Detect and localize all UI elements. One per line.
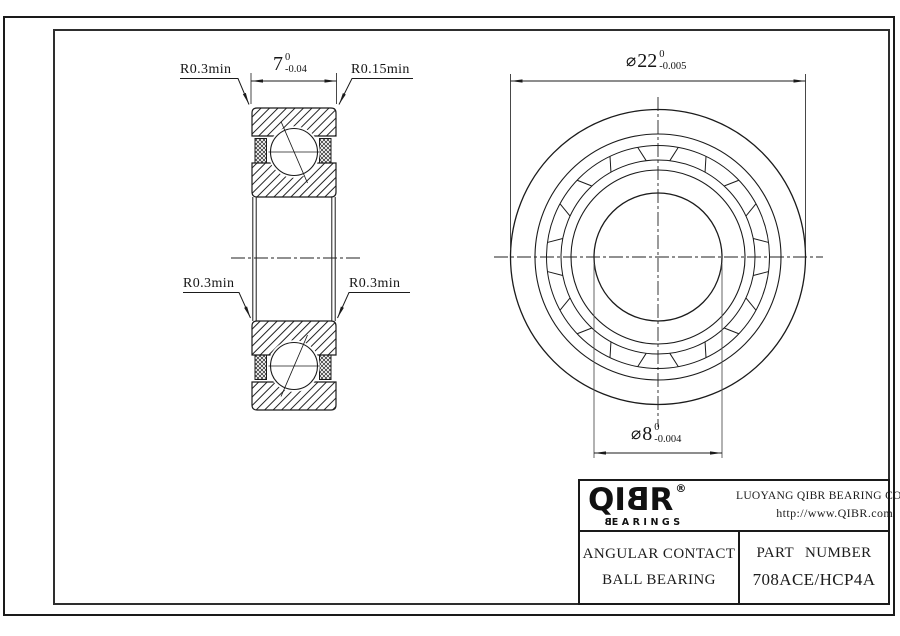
width-tol-lower: -0.04 [285,64,307,76]
brand-logo: QIBR® BEARINGS [580,483,736,527]
company-name: LUOYANG QIBR BEARING CO., LTD [736,490,900,502]
part-number-label: PART NUMBER [756,545,871,562]
drawing-sheet: R0.3min R0.15min R0.3min R0.3min 7 0 -0.… [0,0,900,636]
dimension-width-text: 7 0 -0.04 [273,54,307,76]
title-block: QIBR® BEARINGS LUOYANG QIBR BEARING CO.,… [578,479,890,605]
cross-section-view [252,108,336,410]
diameter-symbol: ⌀ [626,53,636,70]
bore-tol-upper: 0 [654,422,681,434]
width-value: 7 [273,54,283,74]
title-block-header-row: QIBR® BEARINGS LUOYANG QIBR BEARING CO.,… [580,481,888,532]
logo-part1: QI [588,486,626,515]
product-type-cell: ANGULAR CONTACT BALL BEARING [580,532,740,603]
label-radius-mid-left: R0.3min [183,276,234,292]
bore-tol-lower: -0.004 [654,434,681,446]
bore-value: 8 [642,424,652,444]
logo-part2: R [650,486,674,515]
logo-mirrored-b: B [626,486,650,515]
company-info: LUOYANG QIBR BEARING CO., LTD http://www… [736,490,900,521]
logo-subtitle: BEARINGS [588,517,736,528]
label-radius-mid-right: R0.3min [349,276,400,292]
od-tol-lower: -0.005 [659,61,686,73]
width-tol-upper: 0 [285,52,307,64]
label-radius-top-right: R0.15min [351,62,410,78]
product-line1: ANGULAR CONTACT [583,546,736,563]
dimension-width-7 [251,73,337,104]
company-website: http://www.QIBR.com [776,506,893,521]
logo-sub-mirrored-b: B [601,517,612,528]
label-radius-top-left: R0.3min [180,62,231,78]
part-number-value: 708ACE/HCP4A [753,570,876,590]
diameter-symbol: ⌀ [631,426,641,443]
part-number-cell: PART NUMBER 708ACE/HCP4A [740,532,888,603]
title-block-detail-row: ANGULAR CONTACT BALL BEARING PART NUMBER… [580,532,888,603]
od-value: 22 [637,51,657,71]
od-tol-upper: 0 [659,49,686,61]
product-line2: BALL BEARING [602,572,716,589]
logo-sub-rest: EARINGS [612,517,684,528]
dimension-bore-text: ⌀ 8 0 -0.004 [631,424,681,446]
registered-mark: ® [675,484,686,494]
qibr-logo: QIBR® [588,486,736,515]
dimension-od-text: ⌀ 22 0 -0.005 [626,51,686,73]
